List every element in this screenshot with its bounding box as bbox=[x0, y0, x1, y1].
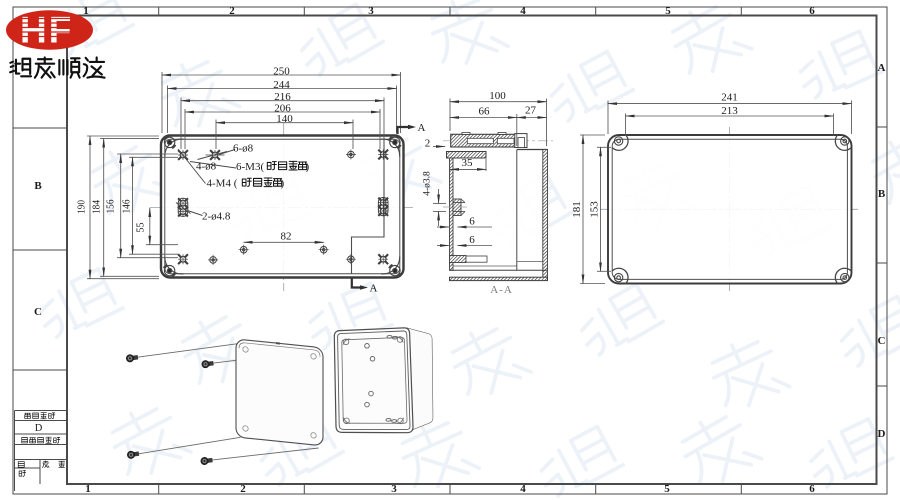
svg-text:2: 2 bbox=[240, 483, 246, 495]
svg-text:HF: HF bbox=[20, 10, 73, 51]
svg-text:181: 181 bbox=[571, 201, 583, 218]
svg-text:2: 2 bbox=[425, 137, 431, 149]
svg-text:140: 140 bbox=[276, 113, 293, 125]
svg-text:6: 6 bbox=[469, 216, 475, 228]
svg-text:6: 6 bbox=[809, 483, 815, 495]
svg-text:6-ø8: 6-ø8 bbox=[233, 143, 254, 155]
svg-text:156: 156 bbox=[105, 199, 117, 213]
svg-text:C: C bbox=[34, 306, 42, 318]
svg-text:4-ø3.8: 4-ø3.8 bbox=[423, 171, 433, 196]
svg-text:244: 244 bbox=[273, 79, 290, 91]
svg-text:B: B bbox=[34, 180, 42, 192]
svg-text:241: 241 bbox=[721, 92, 738, 104]
svg-text:2-ø4.8: 2-ø4.8 bbox=[202, 210, 231, 222]
svg-text:146: 146 bbox=[121, 199, 133, 213]
svg-text:213: 213 bbox=[721, 105, 738, 117]
svg-text:): ) bbox=[281, 178, 285, 190]
svg-text:A: A bbox=[418, 122, 426, 134]
svg-text:D: D bbox=[35, 423, 43, 434]
svg-text:6-M3(: 6-M3( bbox=[236, 161, 264, 173]
svg-text:1: 1 bbox=[85, 483, 91, 495]
svg-text:6: 6 bbox=[809, 5, 815, 17]
svg-text:4: 4 bbox=[520, 483, 526, 495]
svg-text:100: 100 bbox=[489, 90, 506, 102]
svg-text:82: 82 bbox=[281, 230, 292, 242]
svg-text:D: D bbox=[878, 428, 886, 440]
svg-text:216: 216 bbox=[274, 91, 291, 103]
svg-text:A-A: A-A bbox=[490, 284, 513, 296]
svg-text:27: 27 bbox=[525, 105, 537, 117]
svg-text:190: 190 bbox=[76, 200, 88, 214]
svg-text:3: 3 bbox=[368, 5, 374, 17]
svg-text:4-ø8: 4-ø8 bbox=[196, 161, 217, 173]
svg-text:B: B bbox=[878, 188, 886, 200]
svg-text:55: 55 bbox=[135, 222, 147, 232]
svg-text:5: 5 bbox=[665, 5, 671, 17]
svg-text:6: 6 bbox=[469, 234, 475, 246]
svg-text:A: A bbox=[370, 283, 378, 295]
svg-text:): ) bbox=[306, 161, 310, 173]
svg-text:1: 1 bbox=[83, 5, 89, 17]
svg-text:5: 5 bbox=[664, 483, 670, 495]
svg-text:250: 250 bbox=[273, 65, 290, 77]
svg-text:C: C bbox=[878, 335, 886, 347]
svg-text:153: 153 bbox=[589, 201, 601, 218]
svg-text:66: 66 bbox=[479, 106, 491, 118]
svg-text:2: 2 bbox=[229, 5, 235, 17]
svg-text:A: A bbox=[878, 62, 886, 74]
svg-text:4: 4 bbox=[520, 5, 526, 17]
svg-text:4-M4 (: 4-M4 ( bbox=[207, 178, 238, 190]
svg-text:3: 3 bbox=[391, 483, 397, 495]
svg-text:184: 184 bbox=[91, 200, 103, 214]
svg-text:35: 35 bbox=[462, 157, 474, 169]
